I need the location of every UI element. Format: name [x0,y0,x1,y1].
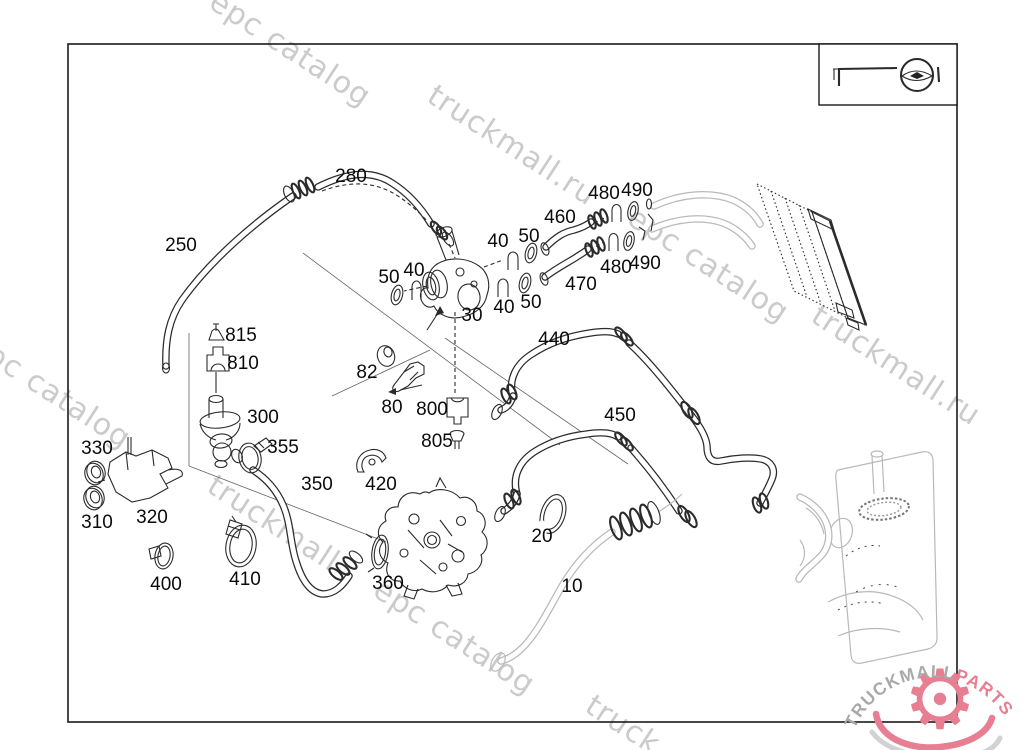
part-label-815: 815 [225,325,257,346]
grommet-310 [81,484,107,512]
part-label-80: 80 [381,397,402,418]
part-label-50: 50 [518,226,539,247]
stud-pin [498,279,508,297]
part-label-30: 30 [461,305,482,326]
part-label-410: 410 [229,569,261,590]
legend-box [819,44,957,105]
part-label-40: 40 [487,231,508,252]
part-label-490: 490 [629,253,661,274]
plug-815 [209,324,224,340]
part-label-450: 450 [604,405,636,426]
part-label-440: 440 [538,329,570,350]
stud-pin [612,205,621,222]
grommet-82 [375,343,398,368]
grommet-330 [82,459,108,487]
part-label-350: 350 [301,474,333,495]
bracket-420 [357,449,386,472]
part-label-460: 460 [544,207,576,228]
catalog-page: epc catalog truckmall.ru epc catalog tru… [0,0,1024,750]
part-label-280: 280 [335,166,367,187]
part-label-10: 10 [561,576,582,597]
part-label-330: 330 [81,438,113,459]
part-label-470: 470 [565,274,597,295]
part-label-480: 480 [588,183,620,204]
part-label-480: 480 [600,257,632,278]
stud-pin [609,234,618,251]
heater-pipes [652,195,760,246]
clamp-400 [149,542,175,571]
heater-core [757,184,866,330]
part-label-82: 82 [356,362,377,383]
valve-300 [199,372,244,468]
plug-800 [447,398,468,424]
part-label-50: 50 [378,267,399,288]
hose-280 [281,174,456,247]
hose-250 [163,196,294,373]
hose-10 [488,494,682,674]
part-label-810: 810 [227,353,259,374]
o-ring [517,272,533,294]
part-label-300: 300 [247,407,279,428]
part-label-420: 420 [365,474,397,495]
part-label-355: 355 [267,437,299,458]
stud-pin [412,281,421,300]
stud-pin [508,252,518,270]
hose-450 [493,431,699,529]
brand-logo: ⚙ TRUCKMALLPARTS [836,628,1024,750]
thermostat-housing [420,225,488,318]
part-label-320: 320 [136,507,168,528]
bracket-80 [393,362,424,392]
part-label-490: 490 [621,180,653,201]
part-label-40: 40 [493,297,514,318]
part-label-20: 20 [531,526,552,547]
clamp-410 [223,516,260,569]
o-ring [626,201,640,222]
bracket-810 [207,347,229,371]
part-label-400: 400 [150,574,182,595]
part-label-50: 50 [520,292,541,313]
part-label-250: 250 [165,235,197,256]
part-label-40: 40 [403,260,424,281]
part-label-800: 800 [416,399,448,420]
part-label-310: 310 [81,512,113,533]
o-ring [622,231,636,252]
part-label-805: 805 [421,431,453,452]
part-label-360: 360 [372,573,404,594]
